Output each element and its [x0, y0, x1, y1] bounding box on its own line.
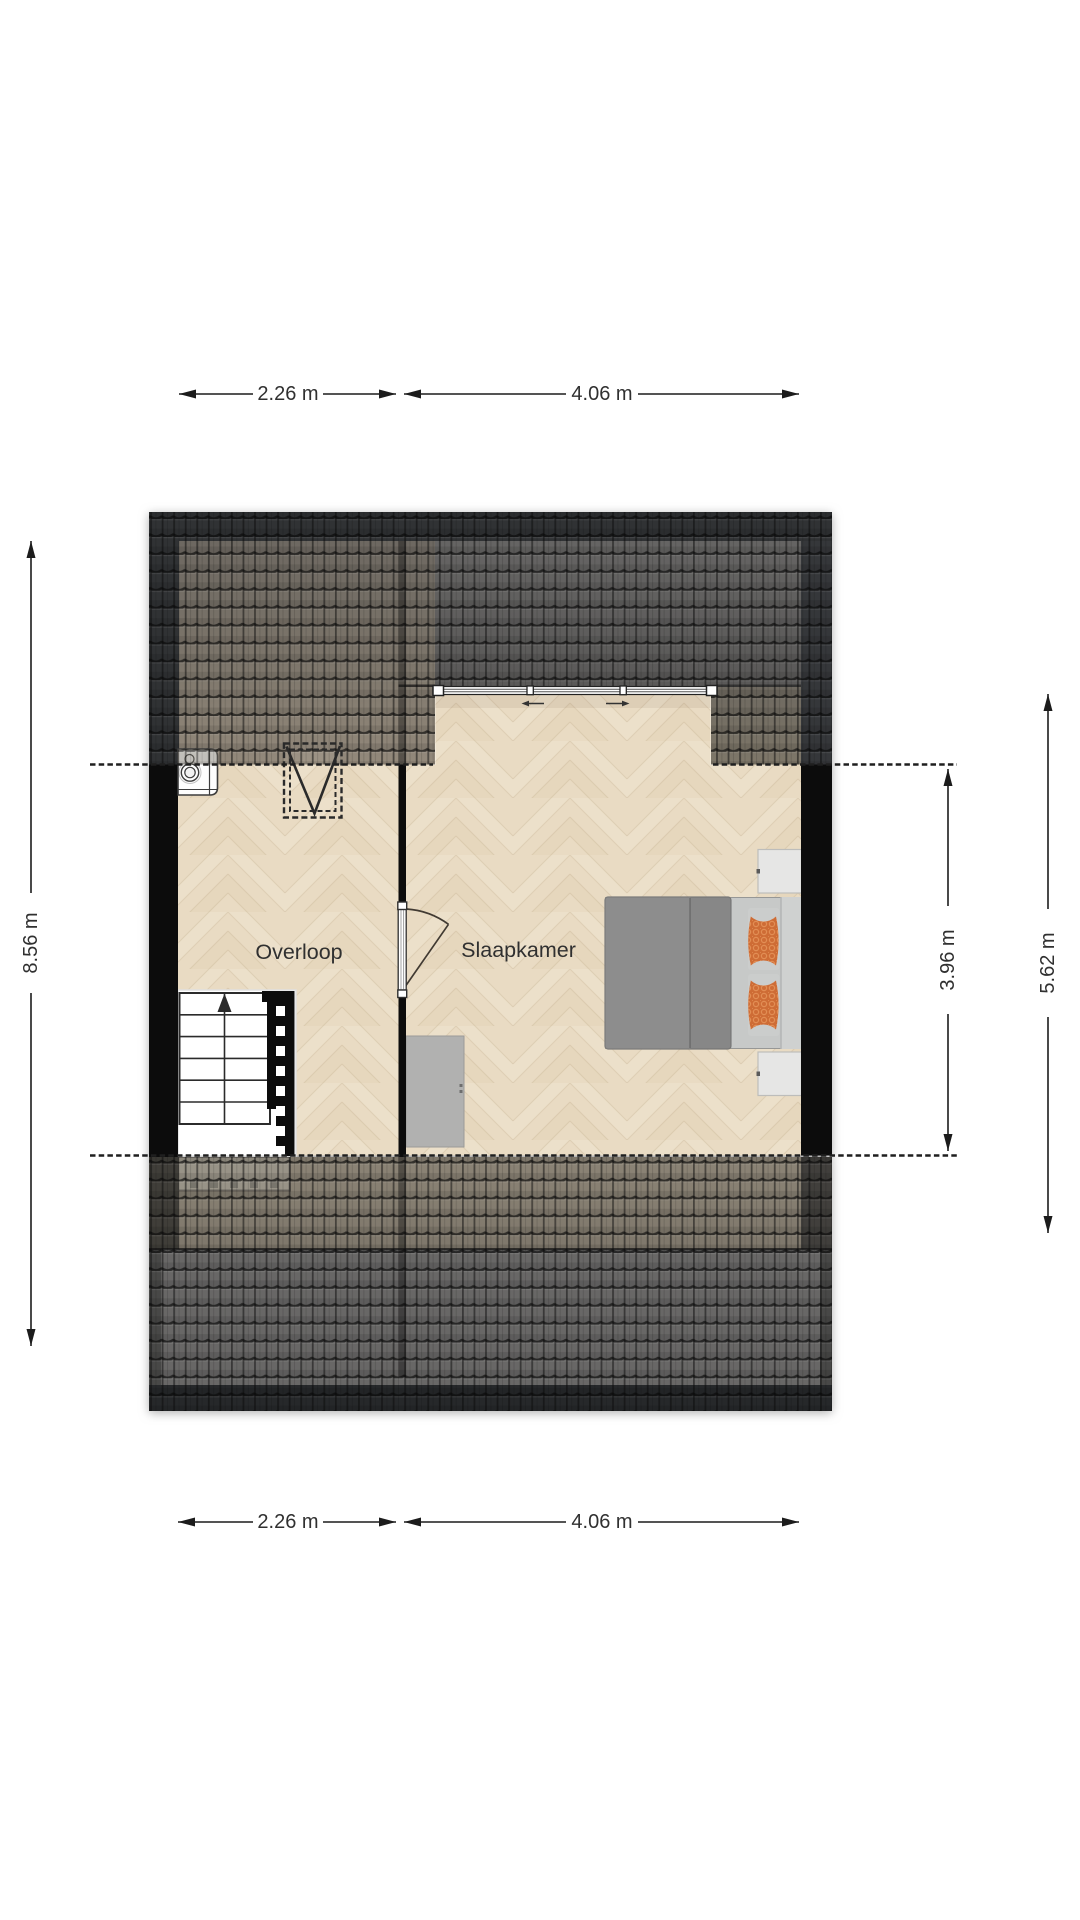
- svg-text:4.06 m: 4.06 m: [571, 1511, 632, 1533]
- svg-text:5.62 m: 5.62 m: [1037, 932, 1059, 993]
- svg-text:Overloop: Overloop: [255, 940, 342, 964]
- svg-text:4.06 m: 4.06 m: [571, 383, 632, 405]
- svg-text:Slaapkamer: Slaapkamer: [461, 938, 576, 962]
- svg-text:8.56 m: 8.56 m: [20, 912, 42, 973]
- svg-text:2.26 m: 2.26 m: [257, 1511, 318, 1533]
- svg-text:2.26 m: 2.26 m: [257, 383, 318, 405]
- svg-text:3.96 m: 3.96 m: [937, 929, 959, 990]
